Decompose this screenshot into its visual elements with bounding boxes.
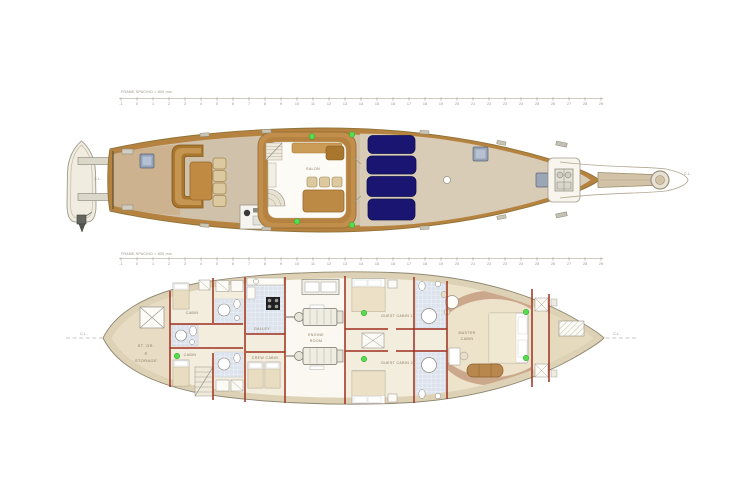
- master-desk: [449, 348, 460, 365]
- master-cabin-label-2: CABIN: [461, 337, 474, 341]
- galley-stove: [266, 297, 280, 310]
- ruler-number: 6: [232, 102, 234, 106]
- ruler-number: 21: [471, 262, 475, 266]
- transom-cleat-port: [122, 149, 133, 154]
- galley-fridge: [247, 287, 255, 299]
- upper-ruler: FRAME SPACING = 800 mm -1012345678910111…: [119, 90, 603, 106]
- engine-room-label-1: ENGINE: [308, 333, 324, 337]
- generator: [302, 280, 339, 295]
- ruler-number: 14: [359, 262, 363, 266]
- ruler-number: 11: [311, 102, 315, 106]
- salon-stairs: [266, 143, 282, 160]
- upper-cl-bow-label: C.L.: [684, 172, 691, 176]
- ruler-number: 5: [216, 262, 218, 266]
- ruler-number: 29: [599, 102, 603, 106]
- salon-corner-table: [326, 146, 344, 160]
- ruler-number: 13: [343, 262, 347, 266]
- guest-cabin-1-label: GUEST CABIN 1: [381, 314, 413, 318]
- ruler-number: 27: [567, 262, 571, 266]
- ruler-number: 10: [295, 262, 299, 266]
- master-bed: [489, 313, 528, 363]
- ruler-number: 6: [232, 262, 234, 266]
- ruler-number: 15: [375, 102, 379, 106]
- ruler-number: 5: [216, 102, 218, 106]
- galley-sink: [253, 279, 258, 284]
- mast-base: [444, 177, 451, 184]
- windlass: [548, 158, 580, 202]
- storage-label-1: ST. GR.: [138, 343, 155, 348]
- ruler-number: 9: [280, 262, 282, 266]
- forepeak-floor: [549, 260, 629, 420]
- ruler-number: 17: [407, 262, 411, 266]
- corridor-hatch: [362, 333, 384, 348]
- anchor-roller-inner: [656, 176, 665, 185]
- lazarette-floor: [0, 260, 170, 420]
- ruler-number: 14: [359, 102, 363, 106]
- salon-label: SALON: [306, 167, 320, 171]
- ruler-number: 19: [439, 102, 443, 106]
- upper-deck-view: C.L.: [67, 128, 691, 232]
- ruler-number: 7: [248, 262, 250, 266]
- ruler-number: 27: [567, 102, 571, 106]
- ruler-number: 7: [248, 102, 250, 106]
- ruler-number: 17: [407, 102, 411, 106]
- bow-locker-floor: [532, 260, 549, 420]
- ruler-number: 18: [423, 102, 427, 106]
- lower-ruler-label: FRAME SPACING = 800 mm: [121, 252, 172, 256]
- ruler-number: 29: [599, 262, 603, 266]
- lower-cl-fwd-label: C.L.: [613, 332, 620, 336]
- crew-cabin-label: CREW CABIN: [252, 356, 279, 360]
- tender: [67, 141, 96, 232]
- lower-ruler: FRAME SPACING = 800 mm -1012345678910111…: [119, 252, 603, 266]
- deckhouse: SALON: [258, 132, 361, 228]
- ruler-number: 23: [503, 102, 507, 106]
- ruler-number: 2: [168, 262, 170, 266]
- ruler-number: 19: [439, 262, 443, 266]
- ruler-number: 10: [295, 102, 299, 106]
- ruler-number: 0: [136, 102, 138, 106]
- aft-table: [190, 162, 212, 200]
- ruler-number: 26: [551, 102, 555, 106]
- engine-room-label-2: ROOM: [310, 339, 323, 343]
- sun-pads: [367, 136, 416, 221]
- ruler-number: 3: [184, 102, 186, 106]
- salon-dining-chairs: [307, 177, 342, 187]
- master-cabin-label-1: MASTER: [458, 331, 475, 335]
- yacht-plan-canvas: FRAME SPACING = 800 mm -1012345678910111…: [0, 0, 744, 496]
- ruler-number: 25: [535, 262, 539, 266]
- upper-ruler-label: FRAME SPACING = 800 mm: [121, 90, 172, 94]
- storage-label-3: STORAGE: [135, 358, 157, 363]
- ruler-number: 11: [311, 262, 315, 266]
- ruler-number: 25: [535, 102, 539, 106]
- ruler-number: 4: [200, 262, 202, 266]
- ruler-number: 26: [551, 262, 555, 266]
- ruler-number: 20: [455, 262, 459, 266]
- ruler-number: 13: [343, 102, 347, 106]
- guest-cabin-2-label: GUEST CABIN 2: [381, 361, 413, 365]
- ruler-number: 2: [168, 102, 170, 106]
- ruler-number: 8: [264, 102, 266, 106]
- ruler-number: 12: [327, 102, 331, 106]
- master-chair: [460, 352, 468, 360]
- ruler-number: -1: [119, 262, 122, 266]
- centerline-fwd: C.L.: [599, 332, 636, 338]
- ruler-number: 28: [583, 262, 587, 266]
- aft-skylight-pane: [143, 157, 152, 166]
- ruler-number: 28: [583, 102, 587, 106]
- transom-cleat-stbd: [122, 205, 133, 210]
- ruler-number: 12: [327, 262, 331, 266]
- ruler-number: 0: [136, 262, 138, 266]
- ruler-number: 18: [423, 262, 427, 266]
- ruler-number: 16: [391, 102, 395, 106]
- ruler-number: 24: [519, 262, 523, 266]
- ruler-number: 22: [487, 262, 491, 266]
- aft-cabin-stbd-label: CABIN: [184, 353, 197, 357]
- ruler-number: 20: [455, 102, 459, 106]
- ruler-number: 24: [519, 102, 523, 106]
- ruler-number: 8: [264, 262, 266, 266]
- ruler-number: 22: [487, 102, 491, 106]
- ruler-number: 3: [184, 262, 186, 266]
- ruler-number: -1: [119, 102, 122, 106]
- salon-table: [303, 190, 344, 212]
- galley-label: GALLEY: [254, 327, 270, 331]
- ruler-number: 16: [391, 262, 395, 266]
- lower-cl-aft-label: C.L.: [80, 332, 87, 336]
- anchor-locker-hatch: [536, 173, 548, 187]
- ruler-number: 23: [503, 262, 507, 266]
- storage-label-2: &: [144, 351, 147, 356]
- upper-cl-stern-label: C.L.: [94, 177, 101, 181]
- ruler-number: 9: [280, 102, 282, 106]
- ruler-number: 15: [375, 262, 379, 266]
- galley-counter: [247, 278, 284, 285]
- fore-hatch-pane: [476, 150, 486, 159]
- ruler-number: 4: [200, 102, 202, 106]
- master-sofa: [467, 364, 503, 377]
- ruler-number: 1: [152, 262, 154, 266]
- companionway-stairs: [195, 367, 213, 396]
- salon-counter: [268, 163, 276, 187]
- ruler-number: 1: [152, 102, 154, 106]
- lower-deck-view: C.L. C.L.: [0, 260, 636, 420]
- aft-cabin-port-label: CABIN: [186, 311, 199, 315]
- ruler-number: 21: [471, 102, 475, 106]
